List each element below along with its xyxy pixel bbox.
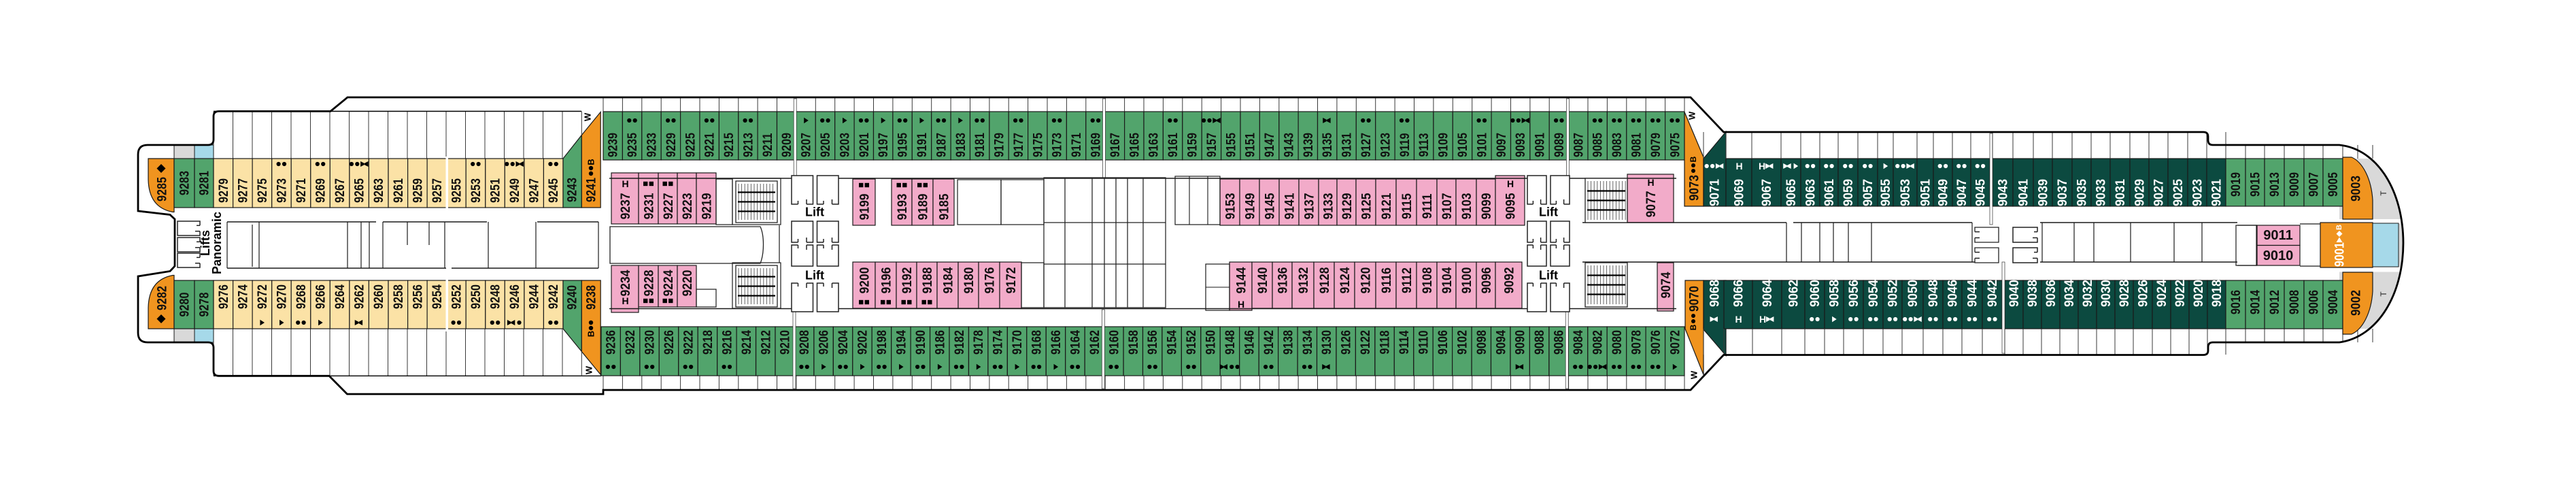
svg-text:9080: 9080 <box>1610 330 1625 355</box>
svg-text:9019: 9019 <box>2228 172 2243 197</box>
svg-text:B: B <box>1689 156 1698 162</box>
svg-text:9045: 9045 <box>1973 179 1988 206</box>
svg-text:9108: 9108 <box>1419 267 1434 294</box>
svg-text:9015: 9015 <box>2248 172 2263 197</box>
svg-text:T: T <box>2379 291 2388 297</box>
svg-text:9034: 9034 <box>2062 279 2077 307</box>
svg-text:9098: 9098 <box>1474 330 1489 355</box>
svg-text:9146: 9146 <box>1242 330 1257 355</box>
svg-text:9070: 9070 <box>1687 286 1701 312</box>
svg-text:9168: 9168 <box>1029 330 1044 355</box>
svg-text:9087: 9087 <box>1571 133 1586 157</box>
svg-text:9181: 9181 <box>972 133 987 157</box>
svg-text:9155: 9155 <box>1223 133 1238 157</box>
svg-text:9263: 9263 <box>371 178 386 203</box>
svg-text:9214: 9214 <box>739 330 754 355</box>
svg-text:9229: 9229 <box>664 133 679 157</box>
svg-text:9119: 9119 <box>1397 133 1412 157</box>
svg-text:9221: 9221 <box>702 133 717 157</box>
svg-text:9178: 9178 <box>971 330 986 355</box>
svg-text:9201: 9201 <box>857 133 872 157</box>
svg-text:9085: 9085 <box>1590 133 1605 157</box>
svg-text:9071: 9071 <box>1707 179 1722 206</box>
svg-text:W: W <box>583 112 593 121</box>
svg-text:9273: 9273 <box>274 178 289 203</box>
svg-text:9029: 9029 <box>2132 179 2147 206</box>
svg-text:H: H <box>1735 161 1742 172</box>
svg-text:9281: 9281 <box>197 171 211 195</box>
svg-text:9243: 9243 <box>564 178 579 202</box>
svg-text:9027: 9027 <box>2151 179 2166 206</box>
svg-text:9269: 9269 <box>313 178 328 203</box>
svg-text:9062: 9062 <box>1786 280 1801 307</box>
svg-text:9116: 9116 <box>1378 267 1393 293</box>
svg-text:9258: 9258 <box>391 284 406 309</box>
svg-text:9227: 9227 <box>660 193 675 220</box>
svg-text:9008: 9008 <box>2287 290 2302 314</box>
svg-text:9103: 9103 <box>1459 193 1474 220</box>
svg-text:9158: 9158 <box>1126 330 1141 355</box>
svg-text:9007: 9007 <box>2306 172 2321 197</box>
svg-text:9275: 9275 <box>255 178 270 203</box>
svg-text:9001: 9001 <box>2332 242 2347 267</box>
svg-text:9171: 9171 <box>1069 133 1084 157</box>
svg-text:H: H <box>1735 314 1742 325</box>
svg-text:9047: 9047 <box>1954 179 1969 206</box>
svg-text:9240: 9240 <box>564 285 579 310</box>
svg-text:9196: 9196 <box>879 267 894 294</box>
svg-text:9014: 9014 <box>2248 290 2263 314</box>
svg-text:9150: 9150 <box>1203 330 1218 355</box>
svg-text:9247: 9247 <box>526 178 541 203</box>
svg-text:9095: 9095 <box>1503 193 1518 220</box>
svg-text:9200: 9200 <box>857 267 872 294</box>
svg-text:9026: 9026 <box>2135 280 2150 307</box>
svg-text:9060: 9060 <box>1808 280 1823 307</box>
svg-text:9203: 9203 <box>837 133 852 157</box>
svg-text:9142: 9142 <box>1261 330 1276 355</box>
svg-text:9220: 9220 <box>679 270 694 297</box>
svg-text:9159: 9159 <box>1185 133 1200 157</box>
svg-text:9016: 9016 <box>2228 290 2243 314</box>
svg-text:9283: 9283 <box>177 171 192 195</box>
svg-text:9169: 9169 <box>1088 133 1103 157</box>
svg-text:H: H <box>1759 314 1766 325</box>
svg-text:9102: 9102 <box>1455 330 1470 355</box>
svg-text:9048: 9048 <box>1926 280 1941 307</box>
svg-text:9156: 9156 <box>1145 330 1160 355</box>
svg-text:9232: 9232 <box>623 330 638 355</box>
svg-text:9011: 9011 <box>2263 228 2292 243</box>
svg-text:9188: 9188 <box>919 267 934 294</box>
svg-text:9010: 9010 <box>2263 248 2294 263</box>
svg-text:9061: 9061 <box>1822 179 1837 206</box>
svg-text:9164: 9164 <box>1068 330 1083 355</box>
svg-text:9012: 9012 <box>2267 290 2282 314</box>
svg-text:B: B <box>586 331 596 337</box>
svg-text:9202: 9202 <box>855 330 870 355</box>
svg-text:9097: 9097 <box>1494 133 1509 157</box>
svg-text:9090: 9090 <box>1512 330 1527 355</box>
svg-text:9020: 9020 <box>2191 280 2206 307</box>
svg-text:9222: 9222 <box>681 330 696 355</box>
svg-text:9279: 9279 <box>216 178 231 203</box>
svg-text:9213: 9213 <box>741 133 756 157</box>
svg-text:9267: 9267 <box>333 178 348 203</box>
svg-text:9133: 9133 <box>1321 193 1336 220</box>
svg-text:9036: 9036 <box>2044 280 2058 307</box>
svg-text:9253: 9253 <box>469 178 484 203</box>
svg-text:9180: 9180 <box>961 267 976 294</box>
svg-text:9041: 9041 <box>2016 179 2031 206</box>
svg-text:H: H <box>1238 299 1244 310</box>
svg-text:9094: 9094 <box>1493 330 1508 355</box>
svg-text:9176: 9176 <box>982 267 997 294</box>
svg-text:9006: 9006 <box>2306 290 2321 314</box>
svg-text:9028: 9028 <box>2117 280 2132 307</box>
svg-text:H: H <box>622 295 628 306</box>
svg-text:9248: 9248 <box>488 284 503 309</box>
svg-text:9206: 9206 <box>816 330 831 355</box>
svg-text:9083: 9083 <box>1610 133 1625 157</box>
svg-text:9065: 9065 <box>1784 179 1799 206</box>
svg-text:9050: 9050 <box>1905 280 1920 307</box>
svg-text:9241: 9241 <box>583 178 598 202</box>
svg-text:9064: 9064 <box>1760 279 1775 307</box>
svg-text:9262: 9262 <box>352 284 367 309</box>
svg-text:9123: 9123 <box>1378 133 1393 157</box>
svg-text:9236: 9236 <box>603 330 618 355</box>
svg-text:9193: 9193 <box>894 194 909 221</box>
svg-text:9211: 9211 <box>760 133 775 157</box>
svg-text:9264: 9264 <box>333 284 348 309</box>
svg-text:9005: 9005 <box>2326 172 2341 197</box>
svg-text:9033: 9033 <box>2093 179 2108 206</box>
svg-text:9056: 9056 <box>1846 280 1861 307</box>
svg-text:9235: 9235 <box>625 133 640 157</box>
svg-text:9255: 9255 <box>449 178 464 203</box>
svg-text:9157: 9157 <box>1204 133 1219 157</box>
svg-text:9153: 9153 <box>1223 193 1238 220</box>
svg-text:9040: 9040 <box>2007 280 2022 307</box>
svg-text:9074: 9074 <box>1658 272 1673 299</box>
svg-text:9023: 9023 <box>2190 179 2205 206</box>
svg-text:9198: 9198 <box>875 330 889 355</box>
svg-text:9075: 9075 <box>1667 133 1682 157</box>
svg-text:9069: 9069 <box>1731 179 1746 206</box>
svg-text:9138: 9138 <box>1281 330 1295 355</box>
svg-text:9208: 9208 <box>797 330 812 355</box>
svg-text:9163: 9163 <box>1146 133 1161 157</box>
svg-text:9124: 9124 <box>1337 267 1352 294</box>
svg-text:9266: 9266 <box>313 284 328 309</box>
svg-text:9096: 9096 <box>1478 267 1493 294</box>
svg-text:9078: 9078 <box>1629 330 1644 355</box>
svg-text:9257: 9257 <box>430 178 445 203</box>
svg-text:9190: 9190 <box>913 330 928 355</box>
svg-text:9209: 9209 <box>779 133 794 157</box>
svg-text:9030: 9030 <box>2099 280 2114 307</box>
svg-text:9053: 9053 <box>1898 179 1913 206</box>
svg-text:Lift: Lift <box>1539 206 1558 219</box>
svg-text:9161: 9161 <box>1166 133 1181 157</box>
svg-text:9210: 9210 <box>777 330 792 355</box>
svg-text:9151: 9151 <box>1242 133 1257 157</box>
svg-text:9219: 9219 <box>699 193 714 220</box>
svg-text:T: T <box>2379 191 2388 196</box>
svg-text:9152: 9152 <box>1184 330 1199 355</box>
svg-text:9122: 9122 <box>1358 330 1373 355</box>
svg-text:9042: 9042 <box>1985 280 2000 307</box>
svg-text:9149: 9149 <box>1242 193 1257 220</box>
svg-text:9147: 9147 <box>1262 133 1277 157</box>
svg-text:9189: 9189 <box>915 194 930 221</box>
svg-text:9129: 9129 <box>1339 193 1354 220</box>
svg-text:9032: 9032 <box>2080 280 2095 307</box>
svg-text:9285: 9285 <box>154 177 169 201</box>
svg-text:9076: 9076 <box>1648 330 1663 355</box>
svg-text:9277: 9277 <box>235 178 250 203</box>
svg-text:9106: 9106 <box>1436 330 1451 355</box>
svg-text:9242: 9242 <box>546 284 561 309</box>
svg-text:9113: 9113 <box>1417 133 1431 157</box>
svg-text:9127: 9127 <box>1359 133 1374 157</box>
svg-text:9271: 9271 <box>294 178 309 203</box>
svg-text:9187: 9187 <box>934 133 949 157</box>
svg-text:H: H <box>1507 178 1514 189</box>
svg-text:W: W <box>584 365 594 374</box>
svg-text:9177: 9177 <box>1011 133 1026 157</box>
svg-text:Panoramic: Panoramic <box>210 212 224 274</box>
svg-text:9175: 9175 <box>1030 133 1045 157</box>
svg-text:9141: 9141 <box>1282 193 1297 220</box>
svg-text:9148: 9148 <box>1223 330 1238 355</box>
svg-text:9154: 9154 <box>1164 330 1179 355</box>
svg-text:9249: 9249 <box>507 178 522 203</box>
svg-text:9044: 9044 <box>1965 279 1980 307</box>
svg-text:9199: 9199 <box>857 194 872 221</box>
svg-text:9120: 9120 <box>1358 267 1373 294</box>
svg-text:9038: 9038 <box>2025 280 2040 307</box>
svg-text:9167: 9167 <box>1108 133 1123 157</box>
svg-text:9278: 9278 <box>197 292 211 316</box>
svg-text:9252: 9252 <box>449 284 464 309</box>
svg-text:9143: 9143 <box>1281 133 1296 157</box>
svg-text:9226: 9226 <box>662 330 677 355</box>
svg-text:9043: 9043 <box>1995 179 2010 206</box>
svg-text:9121: 9121 <box>1378 193 1393 220</box>
svg-text:W: W <box>1689 370 1699 379</box>
svg-text:9274: 9274 <box>235 284 250 309</box>
svg-text:9205: 9205 <box>818 133 833 157</box>
svg-text:9136: 9136 <box>1275 267 1290 294</box>
svg-text:9145: 9145 <box>1262 193 1277 220</box>
svg-text:9051: 9051 <box>1918 179 1933 206</box>
svg-text:9039: 9039 <box>2035 179 2050 206</box>
svg-text:9228: 9228 <box>641 270 656 297</box>
svg-text:9170: 9170 <box>1010 330 1025 355</box>
svg-text:9172: 9172 <box>1003 267 1018 294</box>
svg-text:9182: 9182 <box>952 330 967 355</box>
svg-text:9004: 9004 <box>2326 290 2341 314</box>
svg-text:9009: 9009 <box>2287 172 2302 197</box>
svg-text:9194: 9194 <box>894 330 909 355</box>
svg-text:9195: 9195 <box>895 133 910 157</box>
svg-text:9126: 9126 <box>1338 330 1353 355</box>
svg-text:9013: 9013 <box>2267 172 2282 197</box>
svg-text:9084: 9084 <box>1571 330 1586 355</box>
svg-text:9225: 9225 <box>683 133 698 157</box>
svg-text:H: H <box>622 178 628 189</box>
svg-text:9166: 9166 <box>1049 330 1064 355</box>
svg-text:9179: 9179 <box>992 133 1006 157</box>
svg-text:9077: 9077 <box>1643 191 1658 218</box>
svg-text:9063: 9063 <box>1803 179 1818 206</box>
svg-text:9216: 9216 <box>719 330 734 355</box>
svg-text:9212: 9212 <box>758 330 773 355</box>
svg-text:9192: 9192 <box>899 267 914 294</box>
svg-text:9073: 9073 <box>1687 175 1701 201</box>
svg-text:9270: 9270 <box>274 284 289 309</box>
svg-text:9230: 9230 <box>642 330 657 355</box>
svg-text:9132: 9132 <box>1295 267 1310 294</box>
svg-text:9035: 9035 <box>2074 179 2089 206</box>
svg-text:9099: 9099 <box>1478 193 1493 220</box>
svg-text:9183: 9183 <box>953 133 968 157</box>
svg-text:9079: 9079 <box>1648 133 1663 157</box>
svg-text:9186: 9186 <box>932 330 947 355</box>
svg-text:9024: 9024 <box>2154 279 2169 307</box>
svg-text:9259: 9259 <box>410 178 425 203</box>
svg-text:9054: 9054 <box>1866 279 1881 307</box>
svg-text:9191: 9191 <box>915 133 930 157</box>
svg-text:9057: 9057 <box>1861 179 1876 206</box>
svg-text:9215: 9215 <box>722 133 736 157</box>
svg-text:9244: 9244 <box>526 284 541 309</box>
svg-text:9104: 9104 <box>1439 267 1454 294</box>
svg-text:9162: 9162 <box>1087 330 1102 355</box>
svg-text:9173: 9173 <box>1049 133 1064 157</box>
svg-text:9081: 9081 <box>1629 133 1644 157</box>
svg-text:9160: 9160 <box>1106 330 1121 355</box>
svg-text:9058: 9058 <box>1827 280 1842 307</box>
svg-text:Lift: Lift <box>1539 269 1558 282</box>
svg-text:9093: 9093 <box>1513 133 1528 157</box>
svg-text:W: W <box>1687 111 1697 120</box>
svg-text:9025: 9025 <box>2171 179 2186 206</box>
svg-text:H: H <box>1759 161 1765 172</box>
svg-text:9218: 9218 <box>700 330 715 355</box>
svg-text:9246: 9246 <box>507 284 522 309</box>
svg-text:9003: 9003 <box>2348 176 2362 201</box>
svg-text:9021: 9021 <box>2209 179 2224 206</box>
svg-text:9280: 9280 <box>177 292 192 316</box>
svg-text:9197: 9197 <box>876 133 891 157</box>
svg-text:9068: 9068 <box>1707 280 1722 307</box>
svg-text:9144: 9144 <box>1234 267 1249 294</box>
svg-text:9112: 9112 <box>1399 267 1414 293</box>
svg-text:9089: 9089 <box>1552 133 1567 157</box>
svg-text:B: B <box>1689 324 1698 330</box>
svg-text:9115: 9115 <box>1399 193 1414 219</box>
svg-text:9224: 9224 <box>660 270 675 297</box>
svg-text:9272: 9272 <box>255 284 270 309</box>
svg-text:9223: 9223 <box>679 193 694 220</box>
svg-text:9082: 9082 <box>1590 330 1605 355</box>
svg-text:9101: 9101 <box>1474 133 1489 157</box>
svg-text:B: B <box>586 159 596 165</box>
svg-text:9134: 9134 <box>1300 330 1315 355</box>
svg-text:9238: 9238 <box>583 285 598 310</box>
svg-text:9254: 9254 <box>430 284 445 309</box>
svg-text:9265: 9265 <box>352 178 367 203</box>
svg-text:9109: 9109 <box>1436 133 1451 157</box>
svg-text:9184: 9184 <box>940 267 955 294</box>
svg-text:B: B <box>2335 225 2343 230</box>
svg-text:9165: 9165 <box>1127 133 1142 157</box>
svg-text:9239: 9239 <box>605 133 620 157</box>
svg-text:9059: 9059 <box>1841 179 1856 206</box>
svg-text:9137: 9137 <box>1302 193 1317 220</box>
svg-text:9086: 9086 <box>1551 330 1566 355</box>
svg-text:9185: 9185 <box>936 194 951 221</box>
svg-text:9049: 9049 <box>1935 179 1950 206</box>
svg-text:9114: 9114 <box>1397 330 1412 354</box>
svg-text:9231: 9231 <box>641 193 656 220</box>
svg-text:9135: 9135 <box>1320 133 1335 157</box>
svg-text:9268: 9268 <box>294 284 309 309</box>
svg-text:9002: 9002 <box>2348 290 2362 316</box>
svg-text:9139: 9139 <box>1301 133 1316 157</box>
svg-text:9031: 9031 <box>2113 179 2128 206</box>
svg-text:9251: 9251 <box>488 178 503 203</box>
svg-text:9261: 9261 <box>391 178 406 203</box>
svg-text:9140: 9140 <box>1255 267 1270 294</box>
svg-text:9037: 9037 <box>2055 179 2070 206</box>
svg-text:9237: 9237 <box>617 193 632 220</box>
svg-text:9256: 9256 <box>410 284 425 309</box>
svg-text:9174: 9174 <box>990 330 1005 355</box>
svg-text:9234: 9234 <box>617 270 632 297</box>
svg-text:9046: 9046 <box>1945 280 1960 307</box>
svg-text:9233: 9233 <box>644 133 659 157</box>
svg-text:9128: 9128 <box>1317 267 1332 294</box>
svg-text:9100: 9100 <box>1459 267 1474 294</box>
svg-text:9111: 9111 <box>1419 194 1434 219</box>
svg-text:Lift: Lift <box>805 206 824 219</box>
svg-text:9282: 9282 <box>154 286 169 310</box>
svg-text:9250: 9250 <box>469 284 484 309</box>
svg-text:9091: 9091 <box>1532 133 1547 157</box>
svg-text:9125: 9125 <box>1359 193 1374 220</box>
svg-text:9118: 9118 <box>1377 330 1392 354</box>
svg-text:9207: 9207 <box>798 133 813 157</box>
svg-text:9107: 9107 <box>1439 193 1454 220</box>
svg-text:Lift: Lift <box>805 269 824 282</box>
svg-text:9052: 9052 <box>1885 280 1900 307</box>
svg-text:9276: 9276 <box>216 284 231 309</box>
svg-text:9131: 9131 <box>1339 133 1354 157</box>
svg-text:9072: 9072 <box>1667 330 1682 355</box>
svg-text:9022: 9022 <box>2173 280 2188 307</box>
svg-text:9055: 9055 <box>1878 179 1893 206</box>
svg-text:9105: 9105 <box>1455 133 1470 157</box>
svg-text:9245: 9245 <box>546 178 561 203</box>
svg-text:9066: 9066 <box>1731 280 1746 307</box>
svg-text:9088: 9088 <box>1532 330 1547 355</box>
svg-text:9067: 9067 <box>1759 179 1774 206</box>
svg-text:9018: 9018 <box>2209 280 2224 307</box>
